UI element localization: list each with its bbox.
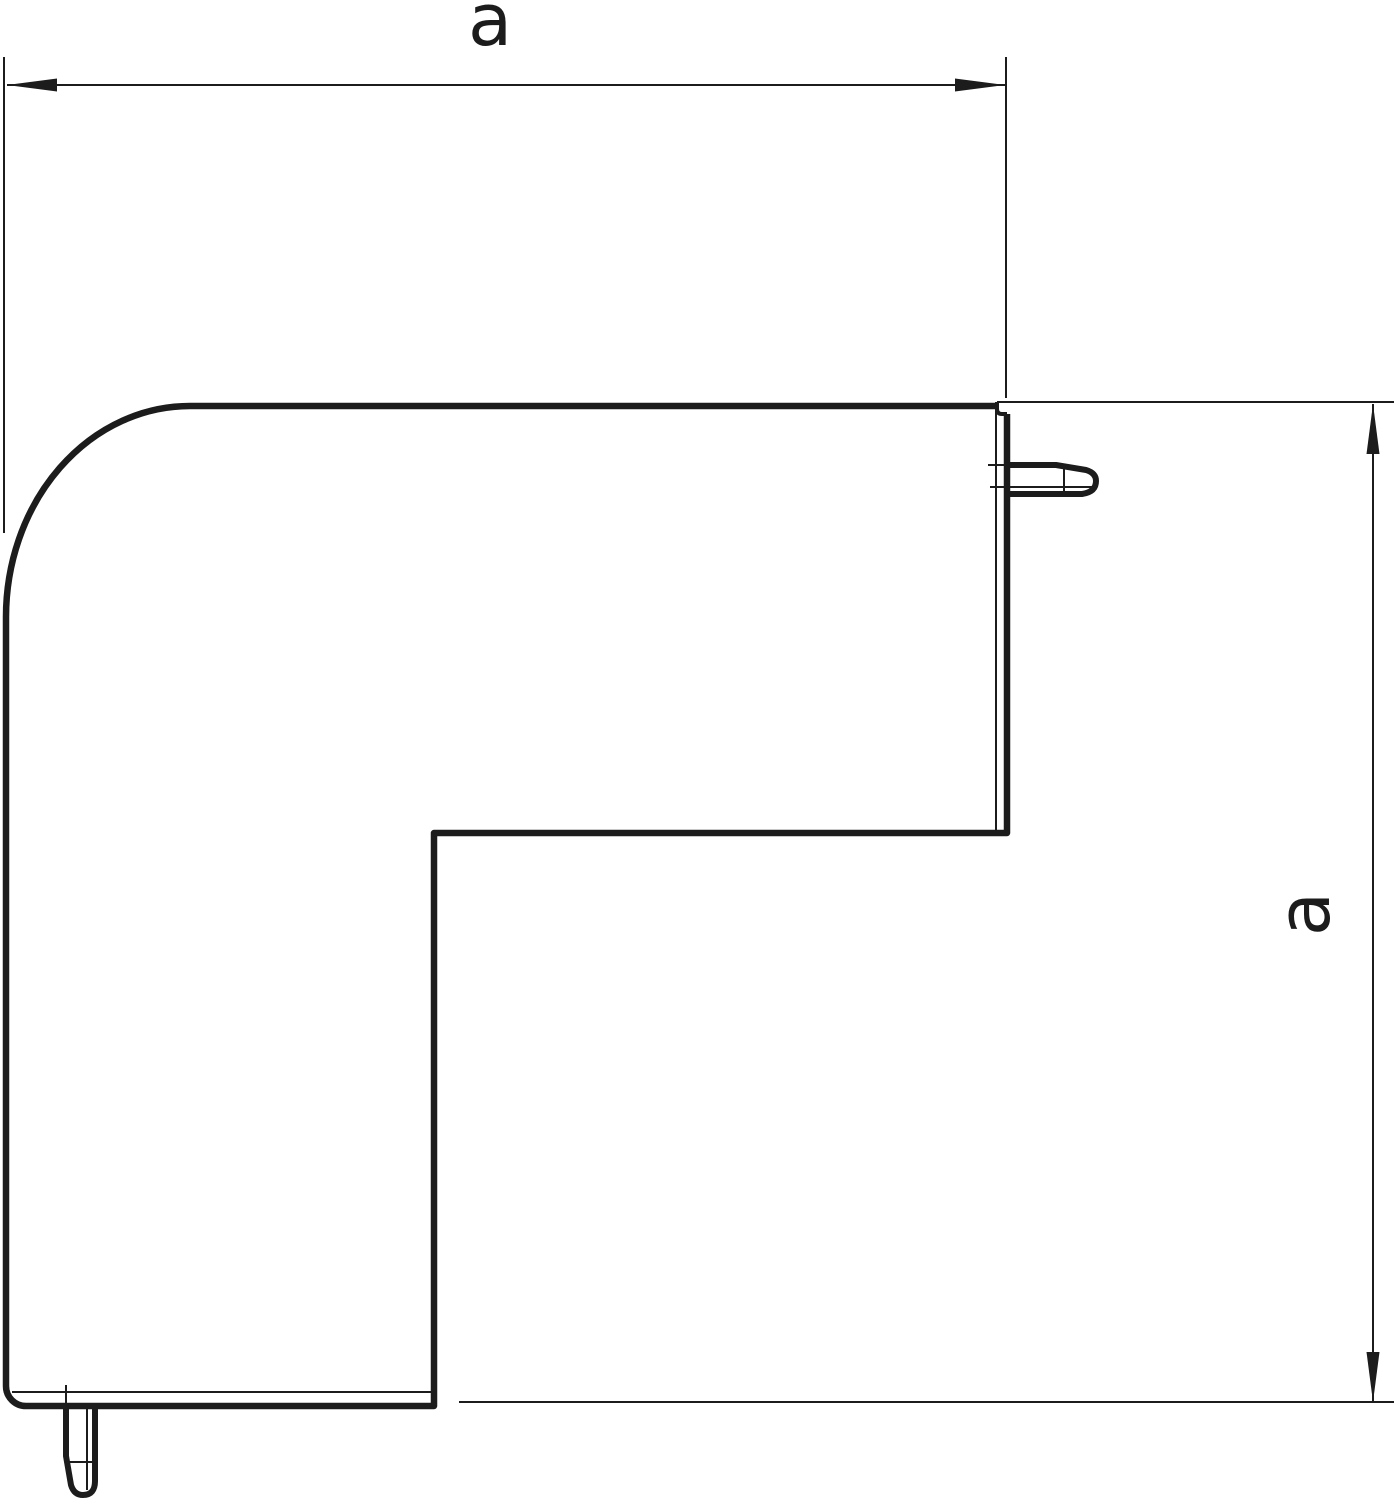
- part-body: [6, 402, 1007, 1406]
- corner-piece-drawing: a a: [0, 0, 1396, 1500]
- arrowhead-up: [1367, 404, 1380, 454]
- right-snap-tab-outline: [1008, 465, 1096, 494]
- horizontal-dimension: a: [4, 0, 1006, 533]
- arrowhead-right: [955, 79, 1005, 92]
- top-right-step: [997, 402, 1007, 414]
- horizontal-dimension-label: a: [468, 0, 512, 62]
- arrowhead-left: [7, 79, 57, 92]
- bottom-snap-tab-outline: [66, 1408, 95, 1495]
- bottom-snap-tab: [66, 1385, 95, 1495]
- technical-drawing-canvas: a a: [0, 0, 1396, 1500]
- part-outline: [6, 406, 1007, 1406]
- arrowhead-down: [1367, 1352, 1380, 1402]
- vertical-dimension-label: a: [1262, 892, 1346, 936]
- vertical-dimension: a: [459, 402, 1394, 1402]
